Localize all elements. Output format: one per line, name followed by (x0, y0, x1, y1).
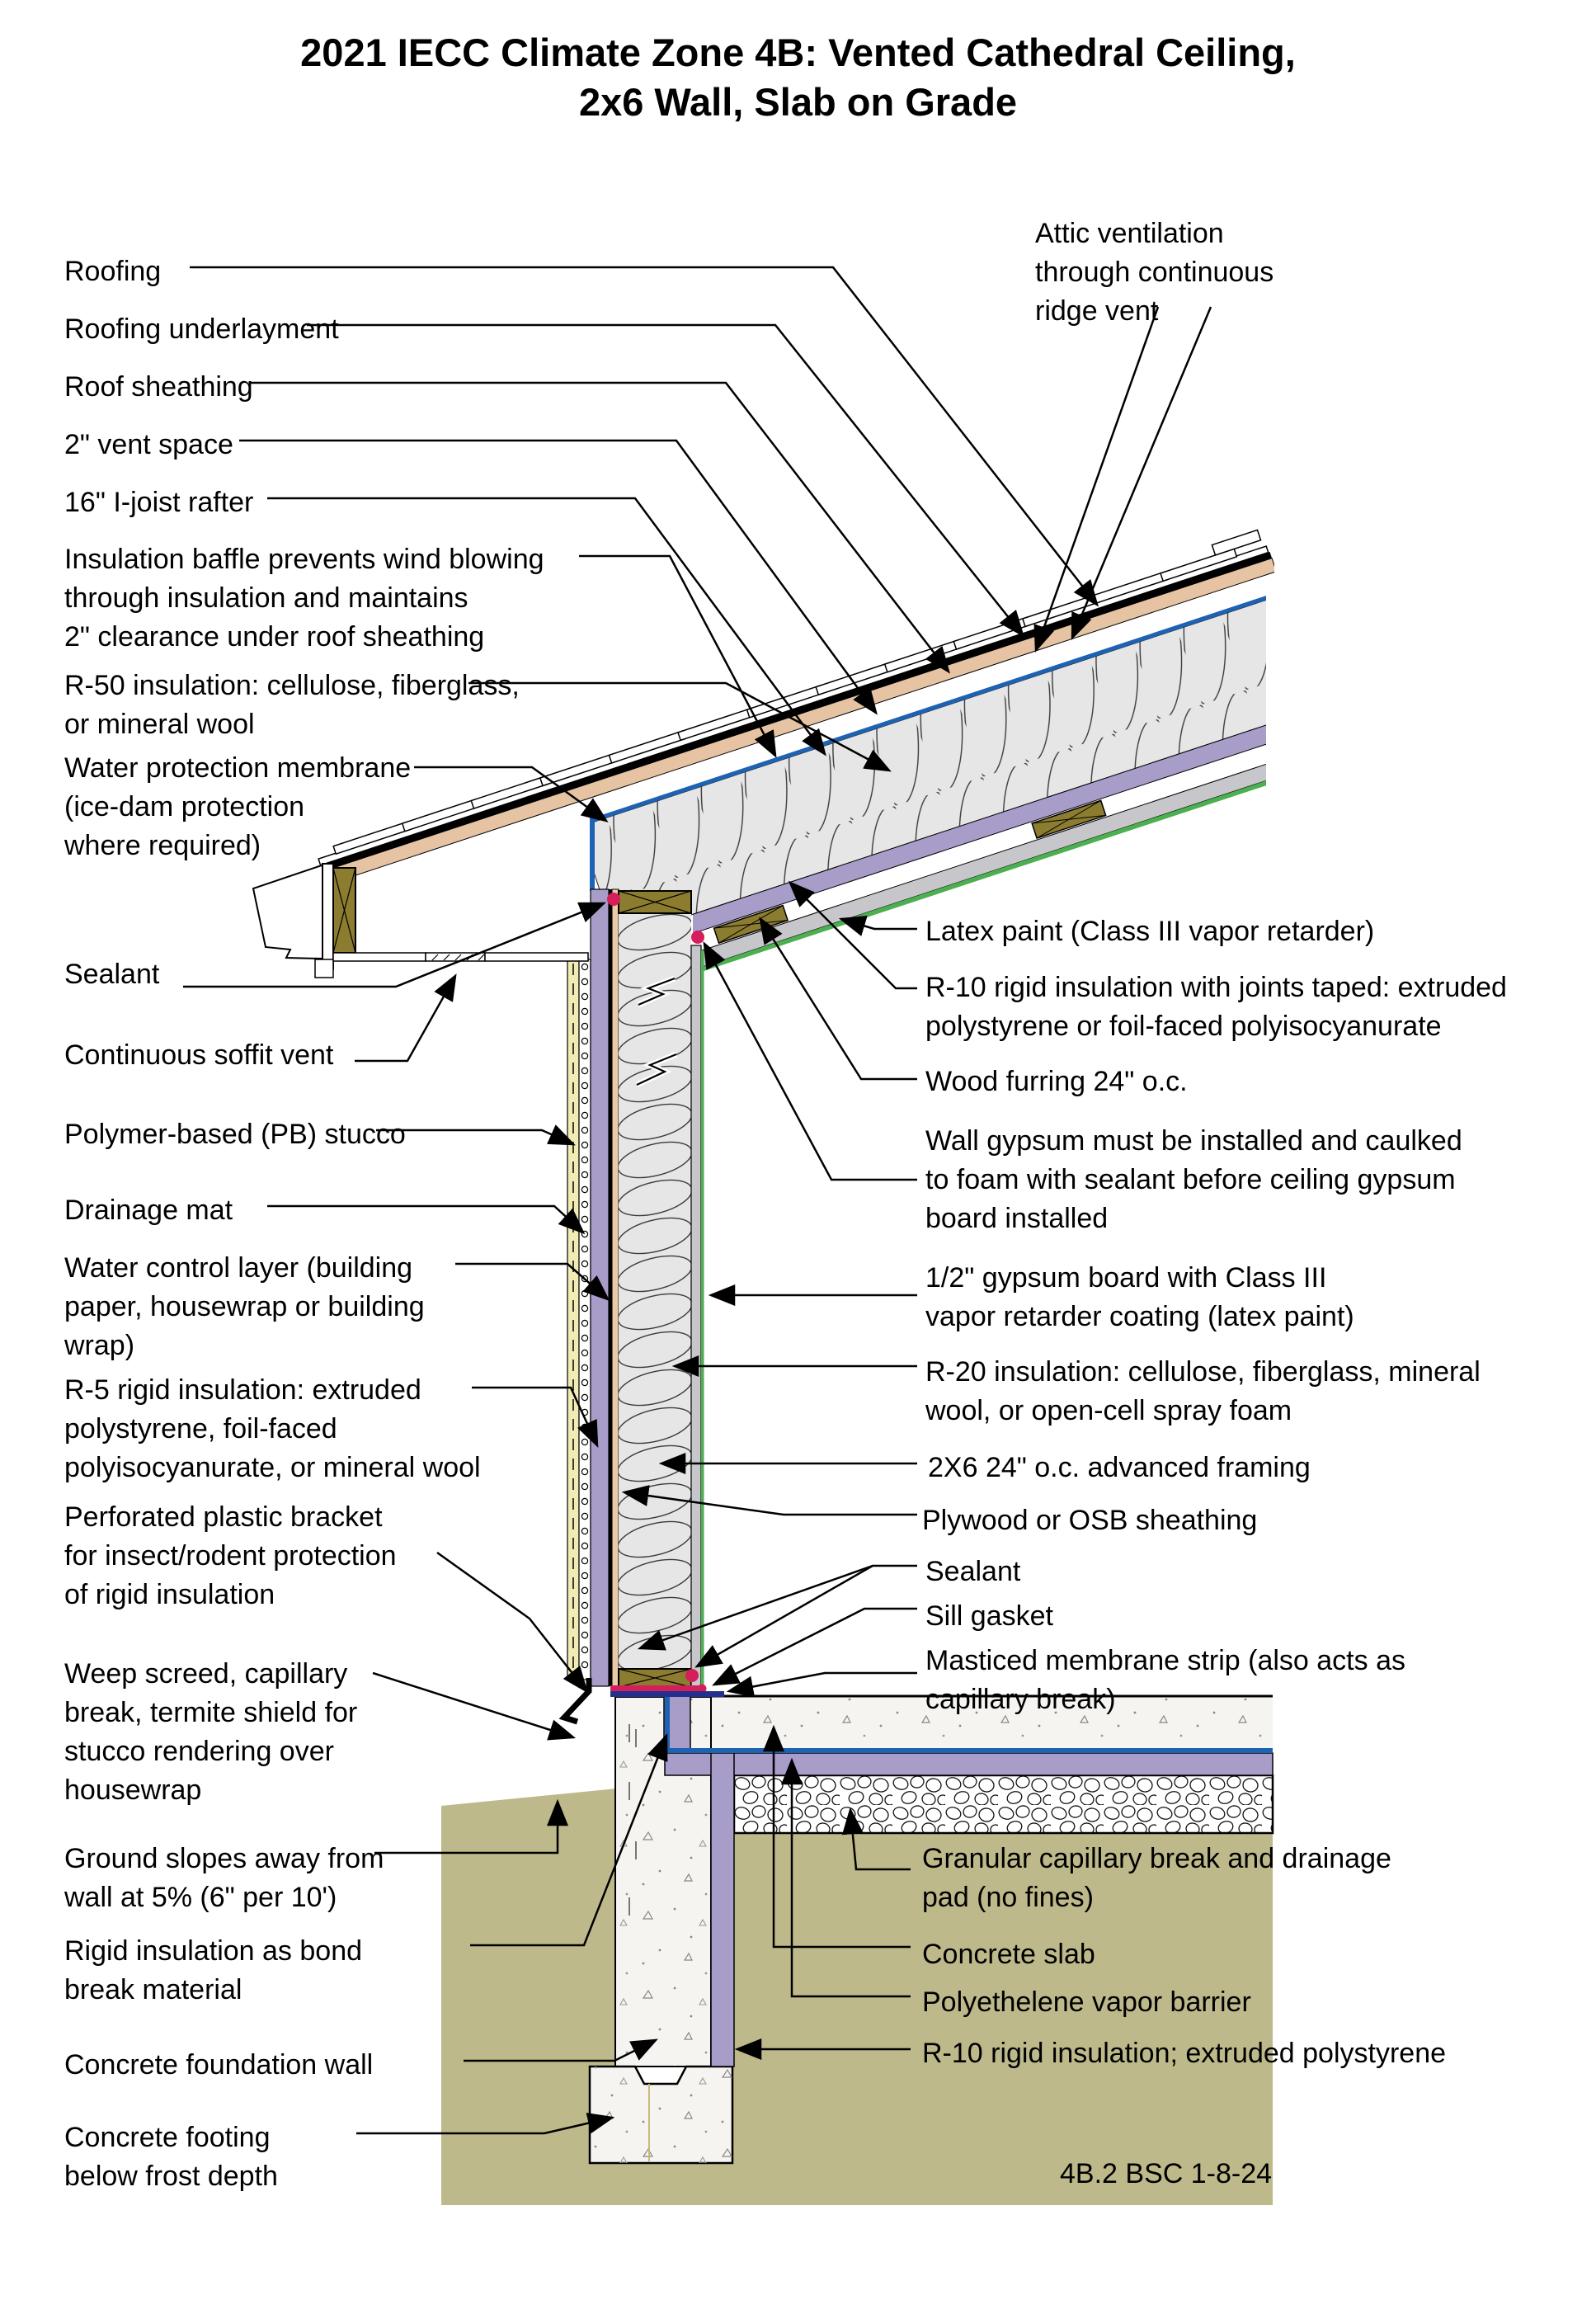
label-sealant: Sealant (64, 955, 159, 994)
label-wood-furring: Wood furring 24" o.c. (925, 1063, 1188, 1101)
leader-soffit-vent (355, 976, 455, 1061)
baffle-end-turn (590, 818, 595, 891)
label-foundation-wall: Concrete foundation wall (64, 2046, 373, 2085)
masticed-membrane-strip (610, 1685, 701, 1692)
label-r20: R-20 insulation: cellulose, fiberglass, … (925, 1353, 1481, 1430)
label-masticed: Masticed membrane strip (also acts as ca… (925, 1642, 1405, 1719)
label-perforated: Perforated plastic bracket for insect/ro… (64, 1498, 397, 1614)
wall-gypsum-board (691, 945, 701, 1690)
label-r50: R-50 insulation: cellulose, fiberglass, … (64, 667, 520, 744)
leader-weep-screed (373, 1673, 573, 1737)
concrete-footing (590, 2067, 732, 2163)
wall-latex-paint-line (701, 950, 704, 1690)
label-r10-ceiling: R-10 rigid insulation with joints taped:… (925, 968, 1507, 1046)
drawing-code: 4B.2 BSC 1-8-24 (1060, 2158, 1272, 2190)
label-concrete-slab: Concrete slab (922, 1935, 1095, 1974)
leader-drainage-mat (267, 1206, 583, 1232)
wall-assembly (567, 889, 704, 1690)
label-ground-slopes: Ground slopes away from wall at 5% (6" p… (64, 1840, 384, 1917)
label-footing: Concrete footing below frost depth (64, 2118, 278, 2196)
label-plywood: Plywood or OSB sheathing (922, 1501, 1257, 1540)
label-roofing-underlayment: Roofing underlayment (64, 310, 339, 349)
label-granular: Granular capillary break and drainage pa… (922, 1840, 1391, 1917)
gutter-profile (253, 865, 322, 959)
label-2x6-framing: 2X6 24" o.c. advanced framing (928, 1449, 1311, 1487)
label-water-control: Water control layer (building paper, hou… (64, 1249, 425, 1365)
sill-gasket-line (610, 1691, 724, 1697)
label-wall-gypsum-note: Wall gypsum must be installed and caulke… (925, 1122, 1462, 1238)
fascia-trim (315, 959, 333, 978)
label-roofing: Roofing (64, 252, 161, 291)
label-ijoist-rafter: 16" I-joist rafter (64, 483, 253, 522)
building-section-diagram: 2021 IECC Climate Zone 4B: Vented Cathed… (0, 0, 1596, 2314)
label-rigid-bond-break: Rigid insulation as bond break material (64, 1932, 362, 2010)
label-drainage-mat: Drainage mat (64, 1191, 233, 1230)
weep-screed-flashing (564, 1678, 589, 1722)
label-insulation-baffle: Insulation baffle prevents wind blowing … (64, 540, 544, 657)
leader-perforated (437, 1553, 586, 1691)
label-vent-space: 2" vent space (64, 426, 233, 464)
label-stucco: Polymer-based (PB) stucco (64, 1115, 406, 1154)
label-r10-slab: R-10 rigid insulation; extruded polystyr… (922, 2034, 1446, 2073)
page-title: 2021 IECC Climate Zone 4B: Vented Cathed… (0, 28, 1596, 127)
fascia-board (322, 864, 333, 969)
label-water-membrane: Water protection membrane (ice-dam prote… (64, 749, 411, 865)
label-half-gypsum: 1/2" gypsum board with Class III vapor r… (925, 1259, 1354, 1336)
leader-masticed (729, 1673, 917, 1691)
wall-sheathing-layer (612, 889, 619, 1686)
soffit-board-right (485, 953, 588, 961)
eave-blocking (333, 868, 355, 953)
leader-sealant-left (183, 903, 604, 987)
label-poly-vapor-barrier: Polyethelene vapor barrier (922, 1983, 1251, 2022)
r20-cavity-insulation (619, 913, 691, 1669)
wall-bottom-plate (619, 1669, 691, 1687)
label-latex-paint: Latex paint (Class III vapor retarder) (925, 912, 1374, 951)
eave-assembly (253, 864, 588, 978)
label-sealant-base: Sealant (925, 1553, 1020, 1591)
label-attic-vent: Attic ventilation through continuous rid… (1035, 214, 1274, 331)
leader-stucco (376, 1130, 573, 1144)
water-control-layer-line (609, 889, 612, 1686)
label-sill-gasket: Sill gasket (925, 1597, 1053, 1636)
granular-capillary-break (734, 1775, 1273, 1833)
soffit-board-left (333, 953, 426, 961)
wall-top-plate (619, 891, 691, 913)
label-r5: R-5 rigid insulation: extruded polystyre… (64, 1371, 481, 1487)
label-roof-sheathing: Roof sheathing (64, 368, 253, 407)
label-weep-screed: Weep screed, capillary break, termite sh… (64, 1655, 357, 1810)
label-soffit-vent: Continuous soffit vent (64, 1036, 333, 1075)
